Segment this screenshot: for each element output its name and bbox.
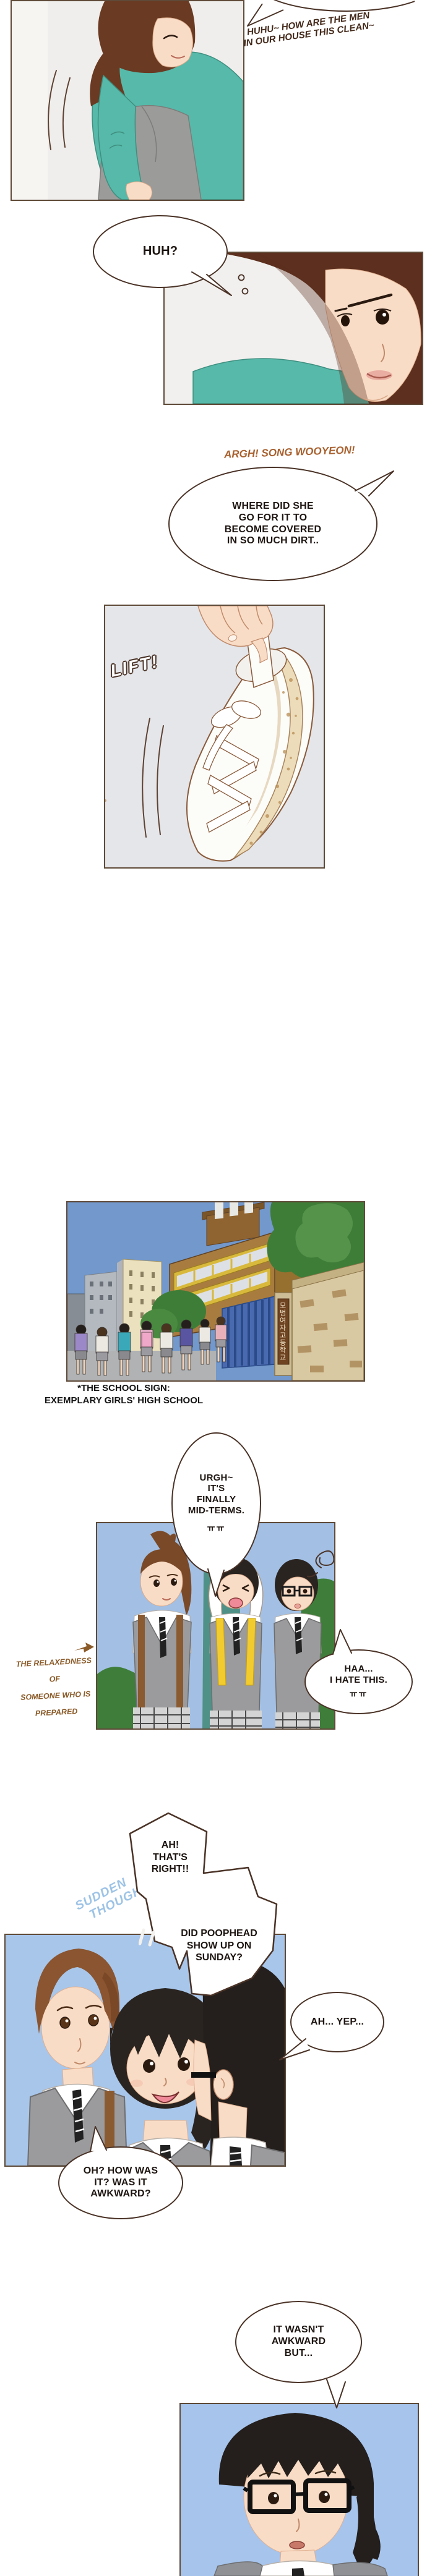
boundary-wall bbox=[292, 1262, 364, 1380]
speech-bubble-wasnt-awkward: IT WASN'T AWKWARD BUT... bbox=[235, 2301, 362, 2383]
bubble-huh-tail bbox=[186, 271, 238, 300]
poophead-line3: SUNDAY? bbox=[166, 1952, 272, 1964]
bubble-how-line3: AWKWARD? bbox=[90, 2188, 151, 2200]
bubble-thats-right-text: AH! THAT'S RIGHT!! bbox=[139, 1839, 201, 1876]
bubble-urgh-line3: FINALLY bbox=[197, 1494, 236, 1505]
panel-school-exterior bbox=[66, 1201, 365, 1382]
bubble-where-line2: GO FOR IT TO bbox=[239, 512, 308, 524]
sfx-argh: ARGH! SONG WOOYEON! bbox=[224, 444, 355, 461]
poophead-line1: DID POOPHEAD bbox=[166, 1928, 272, 1940]
bubble-urgh-tail bbox=[204, 1568, 229, 1600]
bubble-wasnt-line3: BUT... bbox=[285, 2348, 313, 2360]
bubble-yep-tail bbox=[277, 2035, 312, 2064]
webtoon-page: HUHU~ HOW ARE THE MEN IN OUR HOUSE THIS … bbox=[0, 0, 427, 2576]
thats-right-line1: AH! bbox=[139, 1839, 201, 1851]
bubble-huh-text: HUH? bbox=[143, 244, 178, 259]
sweat-drops-icon bbox=[139, 1928, 158, 1949]
speech-bubble-urgh: URGH~ IT'S FINALLY MID-TERMS. ㅠㅠ bbox=[171, 1432, 261, 1575]
bubble-how-tail bbox=[85, 2125, 113, 2154]
speech-bubble-haa: HAA... I HATE THIS. ㅠㅠ bbox=[304, 1649, 413, 1714]
sneaker-art bbox=[105, 606, 324, 867]
caption-school-sign: *THE SCHOOL SIGN: EXEMPLARY GIRLS' HIGH … bbox=[31, 1382, 217, 1406]
bubble-where-line3: BECOME COVERED bbox=[225, 524, 322, 536]
bubble-where-tail bbox=[350, 469, 399, 497]
arrow-icon bbox=[73, 1641, 95, 1656]
bubble-wasnt-line1: IT WASN'T bbox=[273, 2324, 324, 2336]
bubble-haa-line2: I HATE THIS. bbox=[330, 1675, 387, 1686]
worried-girl-art bbox=[181, 2404, 418, 2576]
caption-school-line2: EXEMPLARY GIRLS' HIGH SCHOOL bbox=[31, 1395, 217, 1407]
speech-bubble-where: WHERE DID SHE GO FOR IT TO BECOME COVERE… bbox=[168, 467, 377, 581]
speech-bubble-how-was-it: OH? HOW WAS IT? WAS IT AWKWARD? bbox=[58, 2146, 183, 2219]
bubble-urgh-line2: IT'S bbox=[208, 1483, 225, 1494]
caption-relaxedness: THE RELAXEDNESS OF SOMEONE WHO IS PREPAR… bbox=[9, 1652, 100, 1723]
bubble-wasnt-tail bbox=[322, 2377, 352, 2412]
bubble-where-line1: WHERE DID SHE bbox=[232, 501, 314, 512]
bubble-haa-tail bbox=[327, 1627, 359, 1657]
panel-worried-glasses-girl bbox=[179, 2403, 419, 2576]
crouching-woman-art bbox=[12, 1, 243, 200]
bubble-urgh-line1: URGH~ bbox=[200, 1473, 233, 1484]
school-gate-sign: 모범여자고등학교 bbox=[277, 1299, 288, 1364]
bubble-yep-text: AH... YEP... bbox=[311, 2017, 364, 2028]
panel-crouching-woman bbox=[11, 0, 244, 201]
bubble-how-line2: IT? WAS IT bbox=[94, 2177, 147, 2189]
panel-dirty-sneaker bbox=[104, 605, 325, 869]
bubble-haa-cry: ㅠㅠ bbox=[350, 1688, 368, 1700]
bubble-haa-line1: HAA... bbox=[344, 1664, 373, 1675]
bubble-poophead-text: DID POOPHEAD SHOW UP ON SUNDAY? bbox=[166, 1928, 272, 1964]
bubble-wasnt-line2: AWKWARD bbox=[272, 2336, 326, 2348]
bubble-how-line1: OH? HOW WAS bbox=[84, 2166, 158, 2177]
thats-right-line3: RIGHT!! bbox=[139, 1863, 201, 1876]
partial-speech-bubble bbox=[235, 0, 415, 32]
bubble-urgh-cry: ㅠㅠ bbox=[207, 1522, 226, 1534]
bubble-where-line4: IN SO MUCH DIRT.. bbox=[227, 535, 319, 547]
girl-glasses bbox=[274, 1559, 321, 1728]
bubble-urgh-line4: MID-TERMS. bbox=[188, 1505, 244, 1516]
caption-relaxedness-line1: THE RELAXEDNESS OF bbox=[9, 1652, 99, 1690]
speech-bubble-thats-right-poophead bbox=[124, 1808, 285, 2001]
school-scene-art bbox=[67, 1202, 364, 1380]
poophead-line2: SHOW UP ON bbox=[166, 1940, 272, 1952]
thats-right-line2: THAT'S bbox=[139, 1851, 201, 1864]
caption-school-line1: *THE SCHOOL SIGN: bbox=[31, 1382, 217, 1395]
